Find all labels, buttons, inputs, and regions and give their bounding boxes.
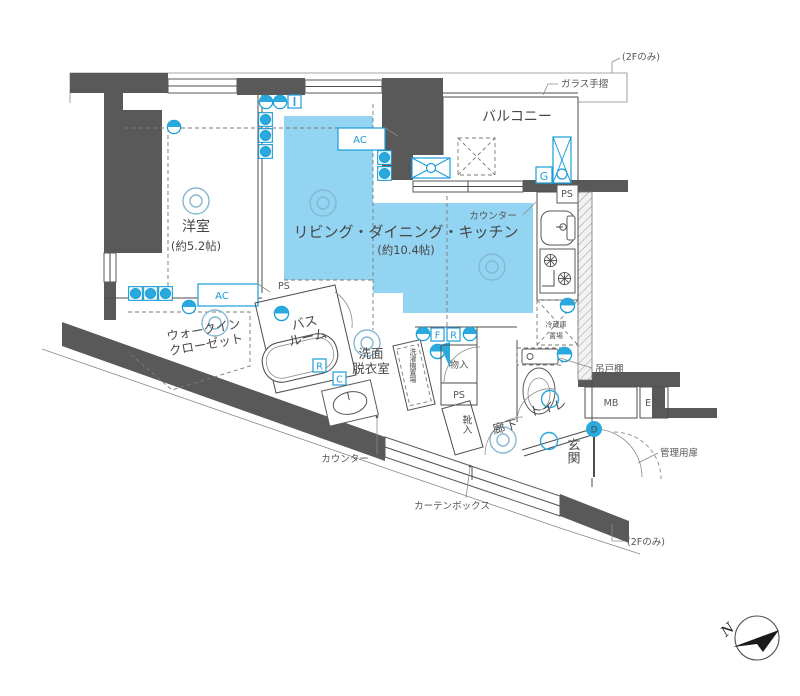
kutsu-ire-label: 靴入	[461, 414, 473, 434]
window-top-1	[168, 79, 237, 93]
gas-label: G	[540, 170, 549, 183]
note-2f-top-label: (2Fのみ)	[622, 52, 660, 63]
balcony-label: バルコニー	[482, 109, 552, 125]
glass-rail-note: ガラス手摺	[543, 78, 608, 95]
wall-light-symbol	[167, 120, 180, 133]
yoshitsu-ceiling-light	[183, 188, 209, 214]
r-box-2: R	[447, 328, 460, 342]
outlet-symbol	[144, 287, 158, 301]
walls	[62, 73, 717, 543]
fridge-label-2: 置場	[549, 331, 563, 340]
water-heater	[553, 137, 571, 183]
fridge-space: 冷蔵庫 置場	[537, 298, 578, 345]
floor-plan: バルコニー G ガラス手摺 (2Fのみ)	[0, 0, 800, 696]
note-2f-top: (2Fのみ)	[612, 52, 660, 73]
gas-meter-box: G	[536, 167, 552, 183]
mono-ire-label: 物入	[449, 359, 469, 371]
window-left	[104, 253, 116, 282]
ps-label-bath: PS	[278, 281, 290, 292]
tsuridodana-label: 吊戸棚	[595, 363, 624, 375]
yoshitsu-ac-label: AC	[215, 291, 229, 302]
washer-label: 洗濯機置場	[409, 347, 417, 384]
c-box: C	[333, 372, 346, 386]
ps-box-corridor: PS	[441, 383, 477, 405]
bath-light	[274, 306, 288, 320]
r-box: R	[313, 359, 326, 373]
senmen-label-1: 洗面	[358, 346, 383, 361]
ps-box-kitchen: PS	[557, 185, 578, 203]
entrance-door	[594, 429, 642, 477]
kitchen-stove	[540, 249, 575, 293]
hatched-wall	[578, 192, 592, 380]
vanity	[322, 380, 379, 426]
ps-label-corridor: PS	[453, 390, 465, 401]
outlet-symbol	[378, 167, 392, 181]
svg-text:F: F	[435, 331, 440, 342]
window-top-2	[305, 80, 382, 93]
fridge-label-1: 冷蔵庫	[546, 320, 567, 329]
compass-arrow	[733, 630, 779, 652]
washer-pan	[412, 158, 450, 178]
genkan-label: 玄関	[565, 438, 581, 465]
note-2f-bottom-label: (2Fのみ)	[627, 537, 665, 548]
kitchen-sink	[541, 211, 575, 245]
kitchen: PS 冷蔵庫 置場	[537, 185, 578, 345]
outdoor-unit-dashed	[458, 138, 495, 175]
yoshitsu-size: (約5.2帖)	[171, 239, 221, 253]
genkan-light	[541, 433, 558, 450]
curtain-box-label: カーテンボックス	[414, 501, 490, 512]
outlet-symbol	[378, 151, 392, 165]
mb-label: MB	[604, 398, 619, 409]
yoshitsu-label: 洋室	[182, 218, 210, 235]
f-box: F	[431, 328, 444, 342]
yoshitsu-ac-box: AC	[198, 284, 270, 306]
glass-rail-label: ガラス手摺	[561, 78, 608, 90]
counter-top-label: カウンター	[469, 211, 517, 222]
eps-label: EPS	[645, 398, 663, 409]
ldk-ac-label: AC	[353, 135, 367, 146]
svg-text:D: D	[591, 426, 598, 436]
outlet-symbol	[129, 287, 143, 301]
floor-plan-page: バルコニー G ガラス手摺 (2Fのみ)	[0, 0, 800, 696]
compass: N	[717, 616, 779, 660]
kanri-door-note: 管理用扉	[614, 432, 698, 479]
counter-bottom-label: カウンター	[321, 454, 369, 465]
balcony-sliding-door	[413, 181, 523, 192]
ldk-size: (約10.4帖)	[377, 243, 435, 257]
ps-label-kitchen: PS	[561, 189, 573, 200]
svg-text:R: R	[316, 362, 323, 373]
svg-text:R: R	[450, 331, 457, 342]
kanri-door-label: 管理用扉	[660, 447, 698, 459]
senmen-label-2: 脱衣室	[352, 361, 390, 376]
ldk-label: リビング・ダイニング・キッチン	[293, 223, 518, 241]
outlet-symbol	[159, 287, 173, 301]
svg-text:C: C	[336, 375, 343, 386]
corridor: F R 物入 PS 靴入 廊下	[415, 327, 523, 455]
